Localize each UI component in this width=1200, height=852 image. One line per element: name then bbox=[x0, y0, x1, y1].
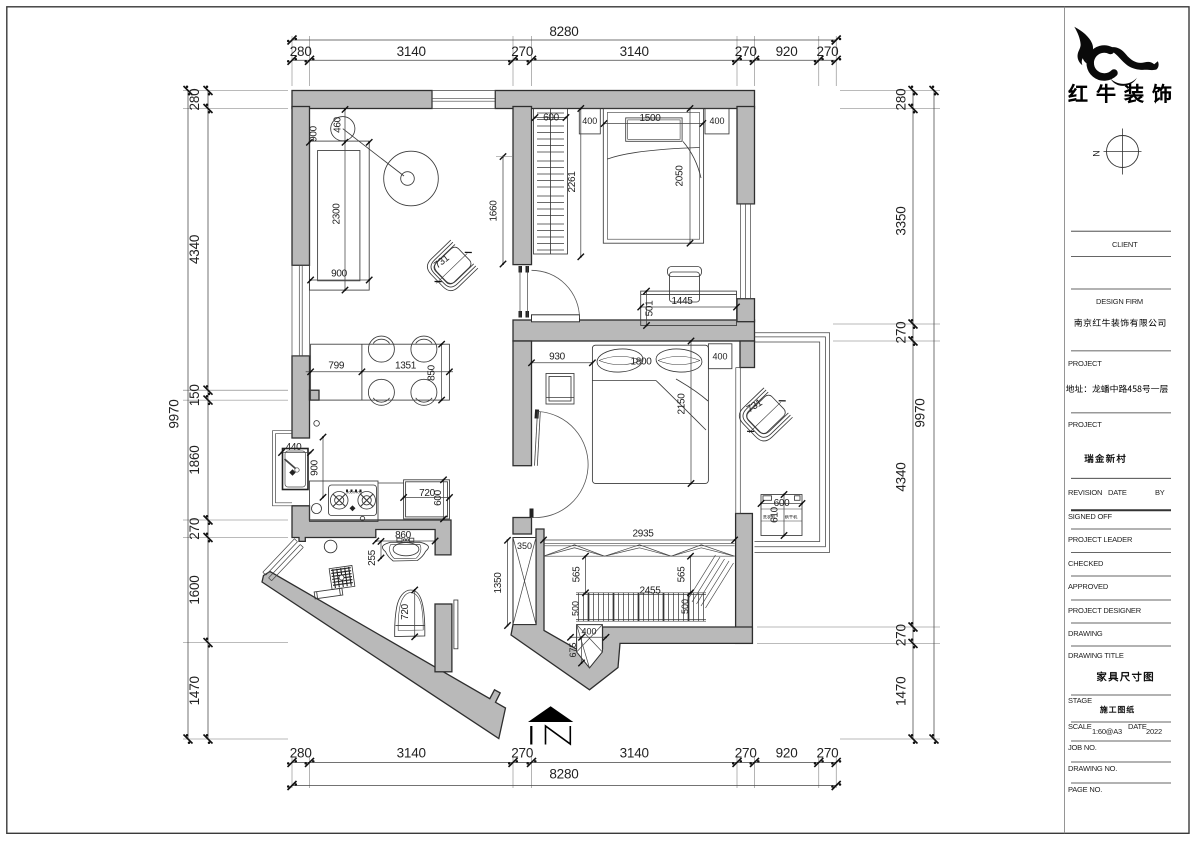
svg-text:1470: 1470 bbox=[894, 677, 909, 706]
svg-text:JOB NO.: JOB NO. bbox=[1068, 743, 1097, 752]
svg-text:2150: 2150 bbox=[677, 393, 688, 415]
svg-text:1470: 1470 bbox=[187, 676, 202, 705]
svg-text:270: 270 bbox=[894, 624, 909, 646]
svg-text:1351: 1351 bbox=[395, 361, 417, 372]
svg-text:3140: 3140 bbox=[620, 746, 649, 761]
svg-text:150: 150 bbox=[187, 384, 202, 406]
svg-text:1500: 1500 bbox=[639, 113, 661, 124]
svg-text:1600: 1600 bbox=[187, 575, 202, 604]
svg-text:1445: 1445 bbox=[671, 296, 693, 307]
svg-text:900X400: 900X400 bbox=[346, 490, 363, 495]
svg-text:565: 565 bbox=[572, 566, 583, 583]
svg-text:270: 270 bbox=[817, 44, 839, 59]
svg-text:REVISION: REVISION bbox=[1068, 488, 1102, 497]
svg-text:3140: 3140 bbox=[397, 44, 426, 59]
svg-text:720: 720 bbox=[400, 603, 411, 620]
svg-text:1800: 1800 bbox=[630, 357, 652, 368]
svg-text:2935: 2935 bbox=[632, 529, 654, 540]
svg-text:400: 400 bbox=[709, 116, 724, 126]
svg-text:610: 610 bbox=[770, 506, 781, 523]
svg-text:930: 930 bbox=[549, 352, 566, 363]
svg-text:3140: 3140 bbox=[397, 746, 426, 761]
svg-text:2261: 2261 bbox=[567, 171, 578, 193]
svg-text:9970: 9970 bbox=[913, 398, 928, 427]
svg-text:270: 270 bbox=[894, 322, 909, 344]
svg-text:4340: 4340 bbox=[894, 462, 909, 491]
svg-text:270: 270 bbox=[187, 518, 202, 540]
svg-text:280: 280 bbox=[290, 44, 312, 59]
svg-text:280: 280 bbox=[894, 89, 909, 111]
svg-text:920: 920 bbox=[776, 44, 798, 59]
svg-text:799: 799 bbox=[328, 361, 345, 372]
svg-text:440: 440 bbox=[286, 442, 303, 453]
svg-text:2050: 2050 bbox=[675, 165, 686, 187]
svg-text:501: 501 bbox=[645, 300, 656, 317]
svg-text:270: 270 bbox=[817, 746, 839, 761]
svg-text:3140: 3140 bbox=[620, 44, 649, 59]
svg-text:DESIGN FIRM: DESIGN FIRM bbox=[1096, 297, 1143, 306]
svg-text:1350: 1350 bbox=[493, 572, 504, 594]
svg-text:8280: 8280 bbox=[549, 24, 578, 39]
svg-text:PROJECT: PROJECT bbox=[1068, 420, 1102, 429]
svg-text:600: 600 bbox=[433, 489, 444, 506]
svg-text:1860: 1860 bbox=[187, 445, 202, 474]
svg-text:600: 600 bbox=[543, 113, 560, 124]
svg-text:400: 400 bbox=[582, 116, 597, 126]
svg-text:460: 460 bbox=[333, 116, 344, 133]
svg-text:400: 400 bbox=[712, 352, 727, 362]
svg-text:DATE: DATE bbox=[1108, 488, 1127, 497]
svg-text:CLIENT: CLIENT bbox=[1112, 240, 1138, 249]
svg-text:920: 920 bbox=[776, 746, 798, 761]
svg-text:850: 850 bbox=[427, 364, 438, 381]
svg-text:DATE: DATE bbox=[1128, 722, 1147, 731]
svg-text:500: 500 bbox=[680, 599, 690, 614]
svg-text:SIGNED OFF: SIGNED OFF bbox=[1068, 512, 1112, 521]
svg-text:DRAWING NO.: DRAWING NO. bbox=[1068, 764, 1117, 773]
svg-text:PROJECT DESIGNER: PROJECT DESIGNER bbox=[1068, 606, 1142, 615]
svg-text:N: N bbox=[1092, 150, 1102, 157]
svg-text:1:60@A3: 1:60@A3 bbox=[1092, 727, 1122, 736]
svg-text:8280: 8280 bbox=[549, 767, 578, 782]
svg-text:PAGE NO.: PAGE NO. bbox=[1068, 785, 1102, 794]
svg-text:270: 270 bbox=[511, 746, 533, 761]
svg-text:DRAWING TITLE: DRAWING TITLE bbox=[1068, 651, 1124, 660]
svg-text:900: 900 bbox=[331, 269, 348, 280]
svg-text:860: 860 bbox=[395, 530, 412, 541]
svg-text:2022: 2022 bbox=[1146, 727, 1162, 736]
svg-text:1660: 1660 bbox=[489, 200, 500, 222]
svg-text:270: 270 bbox=[735, 44, 757, 59]
svg-text:2300: 2300 bbox=[332, 203, 343, 225]
svg-text:565: 565 bbox=[677, 566, 688, 583]
svg-text:255: 255 bbox=[367, 549, 378, 566]
svg-text:270: 270 bbox=[735, 746, 757, 761]
svg-text:900: 900 bbox=[310, 459, 321, 476]
svg-text:STAGE: STAGE bbox=[1068, 696, 1092, 705]
svg-text:280: 280 bbox=[187, 89, 202, 111]
svg-text:SCALE: SCALE bbox=[1068, 722, 1092, 731]
svg-text:270: 270 bbox=[511, 44, 533, 59]
svg-text:350: 350 bbox=[517, 541, 532, 551]
svg-text:DRAWING: DRAWING bbox=[1068, 629, 1103, 638]
svg-text:675: 675 bbox=[568, 642, 578, 657]
svg-text:PROJECT: PROJECT bbox=[1068, 359, 1102, 368]
svg-text:CHECKED: CHECKED bbox=[1068, 559, 1104, 568]
svg-text:PROJECT LEADER: PROJECT LEADER bbox=[1068, 535, 1133, 544]
svg-text:4340: 4340 bbox=[187, 235, 202, 264]
svg-text:280: 280 bbox=[290, 746, 312, 761]
svg-text:2455: 2455 bbox=[639, 586, 661, 597]
svg-text:APPROVED: APPROVED bbox=[1068, 582, 1109, 591]
svg-text:900: 900 bbox=[309, 125, 320, 142]
svg-text:BY: BY bbox=[1155, 488, 1165, 497]
svg-text:9970: 9970 bbox=[167, 399, 182, 428]
svg-text:500: 500 bbox=[571, 601, 581, 616]
svg-text:3350: 3350 bbox=[894, 206, 909, 235]
